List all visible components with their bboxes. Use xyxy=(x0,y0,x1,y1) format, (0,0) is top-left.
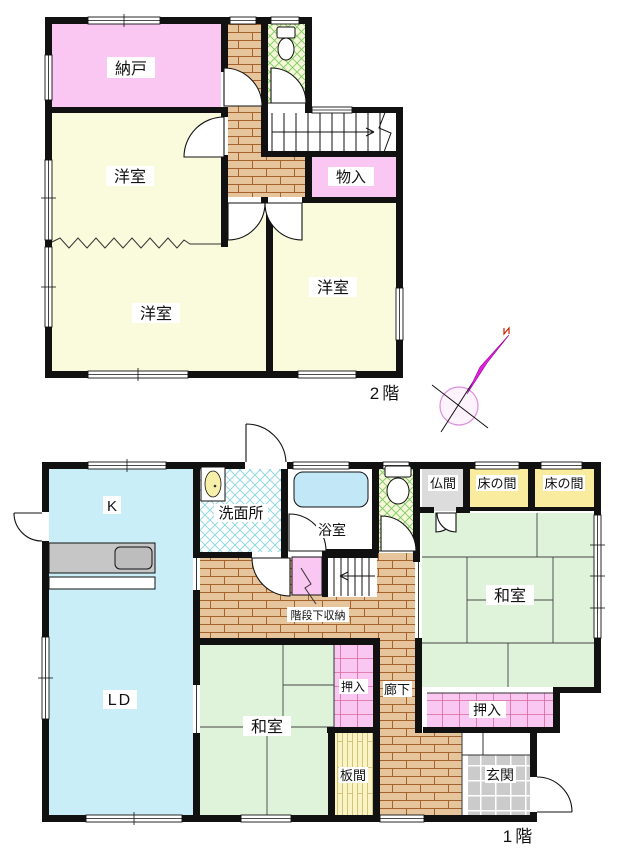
room-washitsu-west-label: 和室 xyxy=(251,718,283,736)
floor-1-plan: K LD 洗面所 浴室 仏間 床の間 床の間 和室 和室 押入 押入 廊下 板間… xyxy=(14,424,605,846)
genkan-hall xyxy=(462,733,530,755)
room-genkan-label: 玄関 xyxy=(486,767,514,783)
room-washitsu-main-label: 和室 xyxy=(494,587,526,605)
room-oshiire-main-label: 押入 xyxy=(473,702,501,718)
floor-1-label: 1階 xyxy=(503,827,535,846)
understairs-storage-label: 階段下収納 xyxy=(291,608,346,622)
toilet-icon-2f xyxy=(277,27,295,60)
room-butsuma-label: 仏間 xyxy=(430,476,456,491)
room-itama-label: 板間 xyxy=(340,768,366,783)
kitchen-counter-icon xyxy=(49,543,155,589)
compass-north-mark xyxy=(504,328,509,334)
room-yokushitsu-label: 浴室 xyxy=(318,522,346,538)
room-rouka-label: 廊下 xyxy=(384,682,410,697)
room-tokonoma-right-label: 床の間 xyxy=(544,476,583,491)
bathtub-icon xyxy=(294,472,368,507)
room-monoire-label: 物入 xyxy=(336,169,366,186)
understairs-storage xyxy=(292,557,322,595)
room-youshitsu-sw-label: 洋室 xyxy=(140,305,172,323)
room-youshitsu-se-label: 洋室 xyxy=(317,279,349,297)
hallway-2f-floor xyxy=(228,24,261,197)
room-nando-label: 納戸 xyxy=(115,60,147,78)
compass-needle xyxy=(467,335,509,394)
room-senmenjo-label: 洗面所 xyxy=(218,505,263,522)
room-kitchen-label: K xyxy=(107,498,117,515)
toilet-icon-1f xyxy=(385,466,411,504)
room-oshiire-small-label: 押入 xyxy=(341,680,365,694)
room-youshitsu-nw-label: 洋室 xyxy=(114,168,146,186)
room-ld-label: LD xyxy=(108,692,132,709)
floor-2-plan: 納戸 洋室 洋室 洋室 物入 2階 xyxy=(41,14,403,403)
compass-icon xyxy=(432,328,509,432)
door-back-entrance xyxy=(246,424,286,462)
door-kitchen-side xyxy=(14,513,42,541)
door-genkan-entrance xyxy=(537,777,572,812)
room-tokonoma-left-label: 床の間 xyxy=(477,476,516,491)
room-genkan xyxy=(468,755,530,815)
room-kitchen-ld xyxy=(49,469,193,815)
floor-2-label: 2階 xyxy=(370,384,402,403)
kitchen-sink-icon xyxy=(115,547,152,569)
floorplan-drawing: 納戸 洋室 洋室 洋室 物入 2階 xyxy=(0,0,620,858)
wash-basin-icon xyxy=(201,467,225,501)
hallway-2f-floor-ext xyxy=(261,157,305,197)
floorplan-page: 納戸 洋室 洋室 洋室 物入 2階 xyxy=(0,0,620,858)
